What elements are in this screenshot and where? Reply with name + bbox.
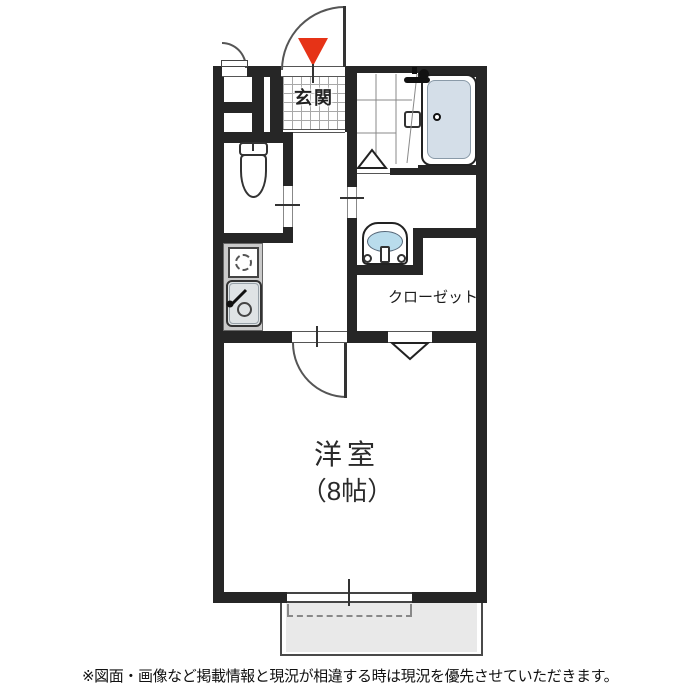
detail-overlay <box>0 0 700 700</box>
disclaimer-text: ※図面・画像など掲載情報と現況が相違する時は現況を優先させていただきます。 <box>82 665 642 687</box>
folding-door-icon-closet <box>392 343 428 359</box>
floor-plan: 玄関 クローゼット 洋室 （8帖） ※図面・画像など掲載情報と現況が相違する時は… <box>0 0 700 700</box>
folding-door-icon-bathroom <box>358 150 386 168</box>
room-size-label: （8帖） <box>277 473 417 505</box>
closet-label: クローゼット <box>383 287 483 305</box>
room-name-label: 洋室 <box>277 437 417 469</box>
entrance-label: 玄関 <box>283 86 345 108</box>
bathroom-panel-lines <box>357 74 417 166</box>
sink-faucet-icon <box>227 290 247 308</box>
